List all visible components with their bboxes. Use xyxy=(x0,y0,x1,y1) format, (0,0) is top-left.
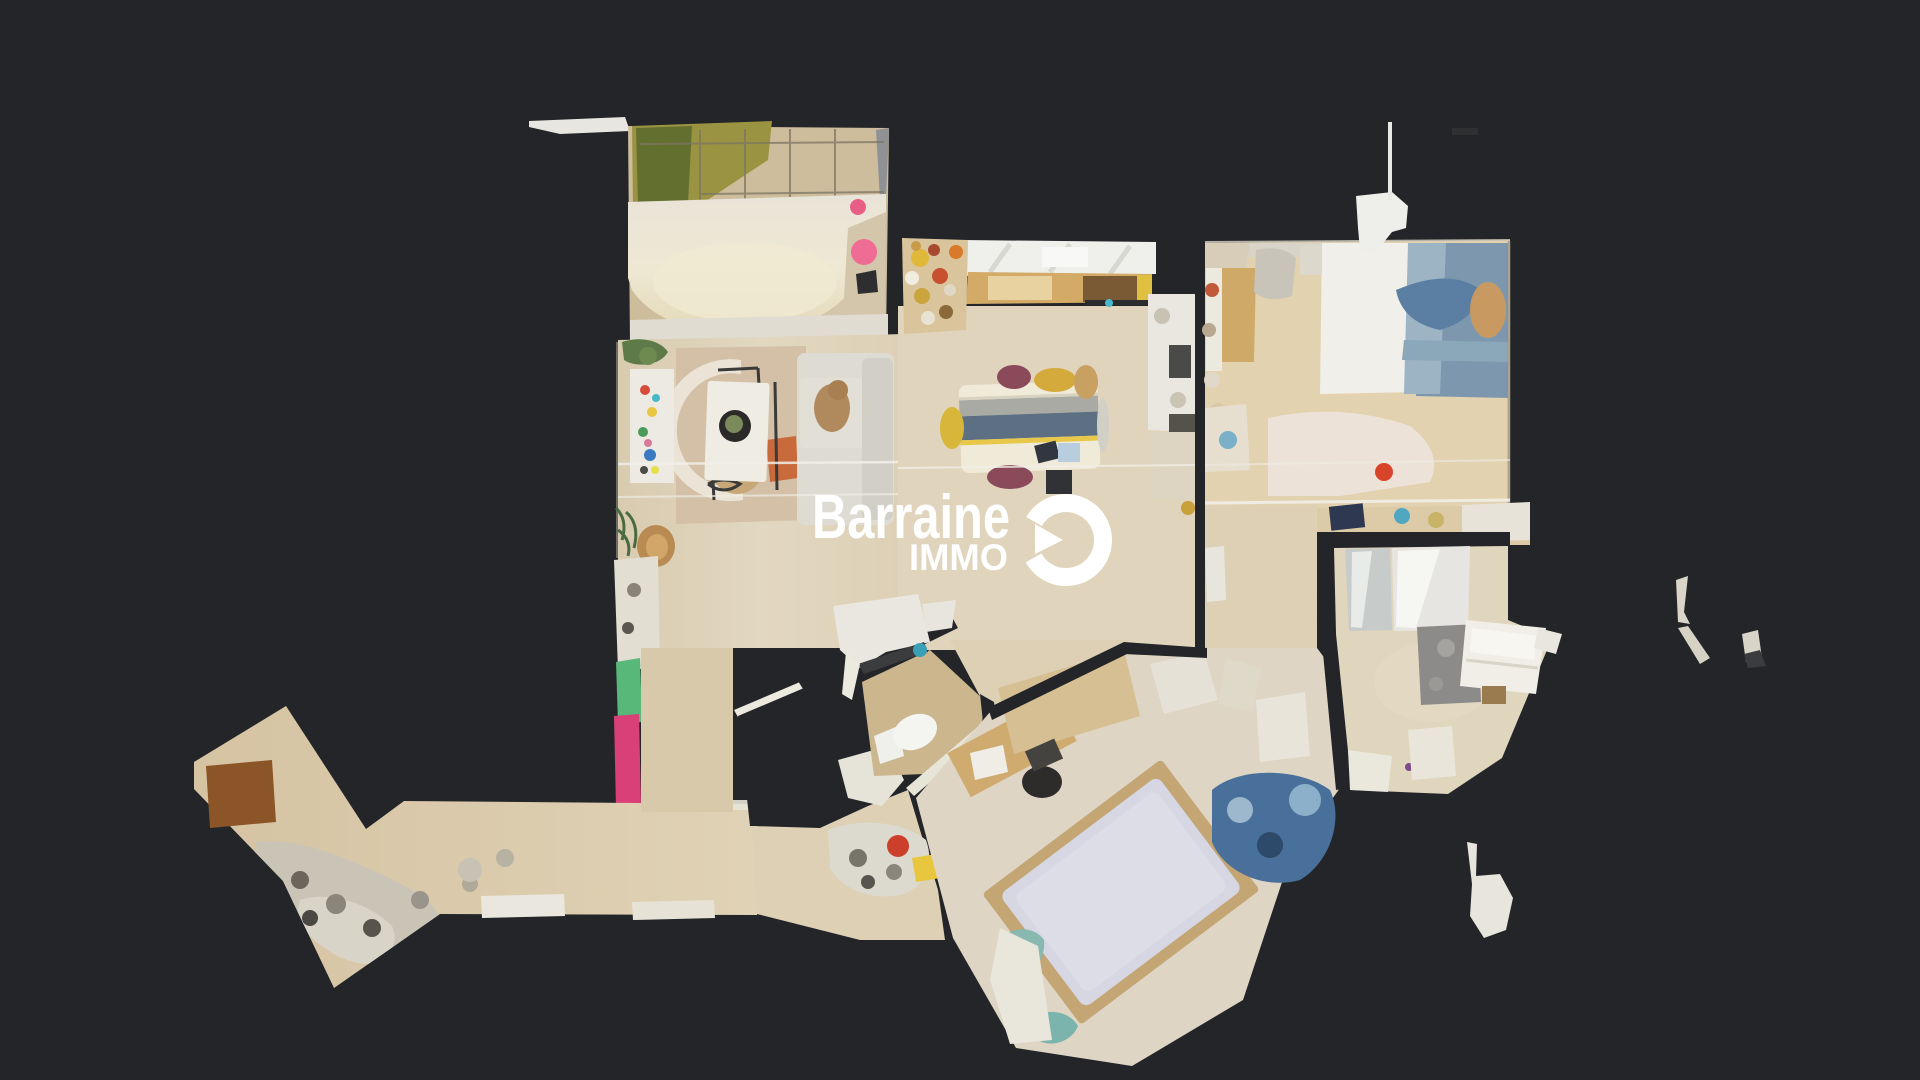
svg-text:IMMO: IMMO xyxy=(909,537,1008,578)
